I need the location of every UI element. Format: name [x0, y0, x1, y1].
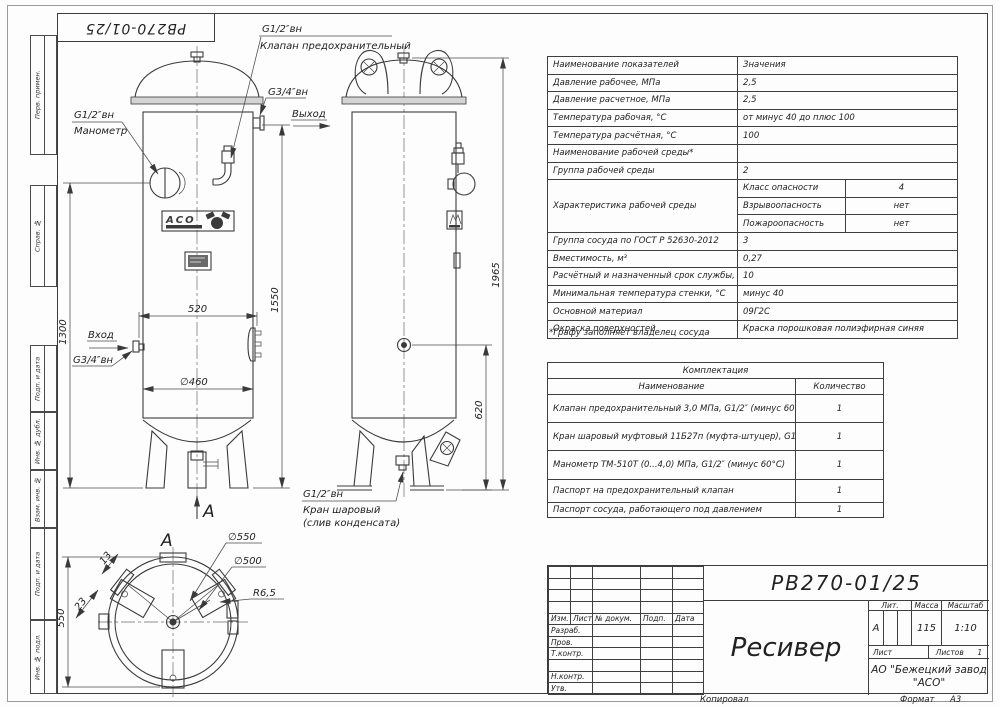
kit-qty: 1 — [796, 503, 884, 518]
spec-value: 09Г2С — [738, 303, 958, 321]
dim-500-circle: ∅500 — [234, 556, 262, 567]
spec-value: 2,5 — [738, 92, 958, 110]
table-row: Давление рабочее, МПа2,5 — [548, 74, 958, 92]
spec-sublabel: Пожароопасность — [738, 215, 846, 233]
table-row: Паспорт на предохранительный клапан1 — [548, 480, 884, 503]
dim-23: 23 — [73, 596, 90, 613]
sheets-cell: Листов 1 — [928, 646, 989, 659]
spec-value: 3 — [738, 232, 958, 250]
spec-label: Минимальная температура стенки, °С — [548, 285, 738, 303]
spec-subvalue: нет — [846, 197, 958, 215]
sheet-label: Лист — [868, 646, 928, 659]
table-row: Характеристика рабочей средыКласс опасно… — [548, 180, 958, 198]
table-row: Манометр ТМ-510Т (0...4,0) МПа, G1/2″ (м… — [548, 451, 884, 480]
revision-header-row: Изм. Лист № докум. Подп. Дата — [549, 613, 704, 625]
spec-label: Основной материал — [548, 303, 738, 321]
spec-value: Значения — [738, 57, 958, 75]
mass-header: Масса — [911, 601, 941, 611]
spec-label: Группа рабочей среды — [548, 162, 738, 180]
specs-footnote: *Графу заполняет владелец сосуда — [549, 328, 710, 338]
spec-label: Наименование показателей — [548, 57, 738, 75]
callout-inlet-size: G3/4″вн — [73, 355, 113, 366]
table-row: НаименованиеКоличество — [548, 379, 884, 395]
callout-outlet-size: G3/4″вн — [268, 87, 308, 98]
table-row: Группа сосуда по ГОСТ Р 52630-20123 — [548, 232, 958, 250]
kit-qty: 1 — [796, 451, 884, 480]
title-block: Изм. Лист № докум. Подп. Дата Разраб. Пр… — [547, 565, 988, 694]
kit-item: Манометр ТМ-510Т (0...4,0) МПа, G1/2″ (м… — [548, 451, 796, 480]
table-row: Расчётный и назначенный срок службы, лет… — [548, 268, 958, 286]
callout-drain-size: G1/2″вн — [303, 489, 343, 500]
format-value: А3 — [950, 695, 961, 705]
spec-label: Группа сосуда по ГОСТ Р 52630-2012 — [548, 232, 738, 250]
scale-value: 1:10 — [941, 611, 989, 646]
row-tkontr: Т.контр. — [549, 648, 593, 660]
spec-label: Температура расчётная, °С — [548, 127, 738, 145]
spec-label: Расчётный и назначенный срок службы, лет — [548, 268, 738, 286]
dim-550-base: 550 — [56, 608, 67, 627]
spec-value: минус 40 — [738, 285, 958, 303]
top-view: А ∅550 ∅500 R6,5 550 23 — [56, 531, 284, 697]
table-row: Температура рабочая, °Сот минус 40 до пл… — [548, 109, 958, 127]
mass-value: 115 — [911, 611, 941, 646]
specs-table: Наименование показателейЗначения Давлени… — [547, 56, 958, 339]
table-row: Основной материал09Г2С — [548, 303, 958, 321]
row-prov: Пров. — [549, 636, 593, 648]
table-row: Вместимость, м³0,27 — [548, 250, 958, 268]
row-razrab: Разраб. — [549, 625, 593, 637]
lit-cell-3 — [897, 611, 911, 646]
row-nkontr: Н.контр. — [549, 671, 593, 683]
copied-label: Копировал — [700, 695, 749, 705]
spec-label: Температура рабочая, °С — [548, 109, 738, 127]
spec-value: 0,27 — [738, 250, 958, 268]
aco-logo-text: АСО — [165, 215, 196, 226]
spec-value — [738, 144, 958, 162]
callout-valve-name: Клапан предохранительный — [260, 41, 411, 52]
format-label: Формат — [900, 695, 935, 705]
table-row: Наименование рабочей среды* — [548, 144, 958, 162]
spec-subvalue: нет — [846, 215, 958, 233]
col-izm: Изм. — [549, 613, 571, 625]
spec-value: 2,5 — [738, 74, 958, 92]
col-data: Дата — [673, 613, 704, 625]
dim-620: 620 — [474, 400, 485, 419]
kit-qty: 1 — [796, 423, 884, 451]
label-inlet: Вход — [88, 330, 114, 341]
spec-value: Краска порошковая полиэфирная синяя — [738, 320, 958, 338]
section-letter-bottom: А — [202, 502, 215, 522]
col-podp: Подп. — [641, 613, 673, 625]
kit-item: Паспорт на предохранительный клапан — [548, 480, 796, 503]
spec-sublabel: Класс опасности — [738, 180, 846, 198]
callout-mano-size: G1/2″вн — [74, 110, 114, 121]
spec-value: 10 — [738, 268, 958, 286]
callout-drain-name2: (слив конденсата) — [303, 518, 400, 529]
dim-1550: 1550 — [270, 287, 281, 312]
spec-label: Вместимость, м³ — [548, 250, 738, 268]
kit-header-qty: Количество — [796, 379, 884, 395]
aco-logo-plate: АСО — [162, 211, 234, 231]
callout-drain-name: Кран шаровый — [303, 505, 381, 516]
dim-1965: 1965 — [491, 262, 502, 287]
part-title: Ресивер — [703, 601, 868, 695]
spec-group-label: Характеристика рабочей среды — [548, 180, 738, 233]
spec-label: Наименование рабочей среды* — [548, 144, 738, 162]
spec-label: Давление расчетное, МПа — [548, 92, 738, 110]
spec-value: 100 — [738, 127, 958, 145]
callout-mano-name: Манометр — [74, 126, 127, 137]
sheets-value: 1 — [977, 648, 982, 657]
company-line1: АО "Бежецкий завод — [871, 664, 987, 677]
dim-13: 13 — [98, 550, 115, 567]
label-outlet: Выход — [292, 109, 326, 120]
table-row: Паспорт сосуда, работающего под давление… — [548, 503, 884, 518]
col-list: Лист — [571, 613, 593, 625]
sheets-label: Листов — [936, 648, 964, 657]
dim-460: ∅460 — [180, 377, 208, 388]
lit-value: А — [868, 611, 883, 646]
drawing-sheet: { "stamp_top": "РВ270-01/25", "margin_la… — [0, 0, 1000, 707]
spec-label: Давление рабочее, МПа — [548, 74, 738, 92]
kit-title: Комплектация — [548, 363, 884, 379]
table-row: Давление расчетное, МПа2,5 — [548, 92, 958, 110]
company-name: АО "Бежецкий завод "АСО" — [868, 659, 989, 695]
row-utv: Утв. — [549, 683, 593, 695]
lit-cell-2 — [883, 611, 897, 646]
kit-item: Кран шаровый муфтовый 11Б27п (муфта-штуц… — [548, 423, 796, 451]
doc-number: РВ270-01/25 — [703, 566, 989, 601]
dimensions: 520 ∅460 1300 1550 1965 620 — [58, 58, 509, 490]
lit-header: Лит. — [868, 601, 911, 611]
table-row: Кран шаровый муфтовый 11Б27п (муфта-штуц… — [548, 423, 884, 451]
table-row: Комплектация — [548, 363, 884, 379]
table-row: Минимальная температура стенки, °Сминус … — [548, 285, 958, 303]
spec-value: 2 — [738, 162, 958, 180]
side-view — [337, 46, 475, 500]
table-row: Клапан предохранительный 3,0 МПа, G1/2″ … — [548, 395, 884, 423]
kit-qty: 1 — [796, 395, 884, 423]
table-row: Группа рабочей среды2 — [548, 162, 958, 180]
spec-subvalue: 4 — [846, 180, 958, 198]
front-view: АСО — [131, 46, 264, 500]
dim-r65: R6,5 — [253, 588, 276, 599]
spec-sublabel: Взрывоопасность — [738, 197, 846, 215]
table-row: Температура расчётная, °С100 — [548, 127, 958, 145]
dim-520: 520 — [188, 304, 207, 315]
title-block-revision-table: Изм. Лист № докум. Подп. Дата Разраб. Пр… — [548, 566, 704, 695]
company-line2: "АСО" — [913, 677, 945, 690]
kit-header-name: Наименование — [548, 379, 796, 395]
spec-value: от минус 40 до плюс 100 — [738, 109, 958, 127]
kit-item: Паспорт сосуда, работающего под давление… — [548, 503, 796, 518]
table-row: Наименование показателейЗначения — [548, 57, 958, 75]
dim-550-circle: ∅550 — [228, 532, 256, 543]
kit-table: Комплектация НаименованиеКоличество Клап… — [547, 362, 884, 518]
col-docnum: № докум. — [593, 613, 641, 625]
kit-item: Клапан предохранительный 3,0 МПа, G1/2″ … — [548, 395, 796, 423]
callout-valve-size: G1/2″вн — [262, 24, 302, 35]
dim-1300: 1300 — [58, 319, 69, 344]
kit-qty: 1 — [796, 480, 884, 503]
section-letter-top: А — [160, 531, 173, 551]
scale-header: Масштаб — [941, 601, 989, 611]
